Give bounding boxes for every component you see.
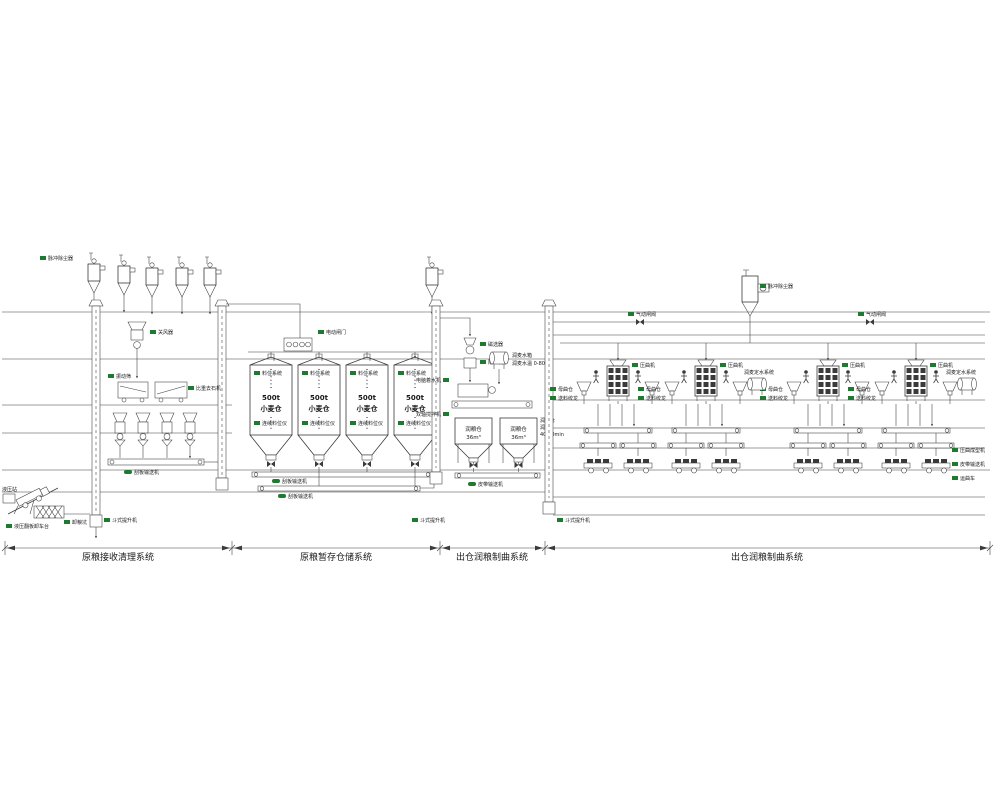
section-title-receiving: 原粮接收清理系统: [82, 551, 154, 563]
diagram-canvas: 料位系统 500t 小麦仓 连续料位仪 母曲仓 送料绞龙 压曲机: [0, 0, 1000, 800]
truck-tipper-label: 液压翻板卸车台: [14, 523, 49, 530]
moistening-belt-conveyor: 皮带输送机: [455, 473, 540, 488]
magnetic-separator-label: 磁选器: [488, 341, 503, 348]
bucket-elevator-c-label: 斗式提升机: [420, 517, 445, 524]
dust-collector-label: 脉冲除尘器: [48, 255, 73, 262]
electric-gate-label: 电动闸门: [326, 329, 346, 336]
section-title-moistening: 出仓润粮制曲系统: [456, 551, 528, 563]
bucket-elevator-label: 斗式提升机: [112, 517, 137, 524]
distribution-box: [284, 338, 312, 351]
koji-tag-column: 压曲成型机 皮带输送机 运曲车: [952, 447, 985, 482]
rotary-valve-label: 关风器: [158, 329, 173, 336]
discharge-conveyor-label-1: 刮板输送机: [282, 478, 307, 485]
koji-belt-label: 皮带输送机: [960, 461, 985, 468]
process-flow-diagram: { "diagram": { "sections": [ {"id": "rec…: [0, 0, 1000, 800]
pneumatic-valve-label-2: 气动闸阀: [866, 311, 886, 318]
bucket-elevator-a: [89, 300, 103, 527]
water-tank-label: 润麦水箱: [512, 352, 532, 359]
destoner-label: 比重去石机: [196, 385, 221, 392]
press-forming-label: 压曲成型机: [960, 447, 985, 454]
computer-water-label: 电脑着水机: [416, 377, 441, 384]
moistening-water-tank: 润麦水箱 润麦水温 0-80℃: [490, 352, 551, 384]
transport-cart-label: 运曲车: [960, 475, 975, 482]
section-title-storage: 原粮暂存仓储系统: [300, 551, 372, 563]
scraper-conveyor-1: 刮板输送机: [108, 459, 218, 476]
water-system-label-1: 润麦定水系统: [744, 369, 774, 376]
section-koji-making: 脉冲除尘器 气动闸阀 气动闸阀 润麦定水系统 润麦定水系统 压曲成型机 皮带输送…: [550, 270, 985, 482]
twin-shaft-mixer-label: 双轴搅拌机: [416, 411, 441, 418]
rotary-valve-unit: 关风器: [128, 322, 173, 378]
vibrating-screen-label: 振动筛: [116, 373, 131, 380]
section-title-koji: 出仓润粮制曲系统: [731, 551, 803, 563]
moistening-bin-1: 润粮仓 36m³: [455, 418, 492, 463]
bin-volume-1: 36m³: [466, 434, 481, 441]
gravity-destoner: 比重去石机: [155, 382, 221, 402]
bucket-elevator-d-label: 斗式提升机: [565, 517, 590, 524]
pneumatic-valve-tag-1: [628, 312, 634, 316]
koji-dust-collector-label: 脉冲除尘器: [768, 283, 793, 290]
elevator-tag: [104, 518, 110, 522]
vibrating-screen: 振动筛: [108, 373, 148, 402]
unloading-pit-label: 卸粮坑: [72, 519, 87, 526]
section-silo-storage: 电动闸门 刮板输送机 刮板输送机: [226, 304, 438, 500]
water-system-label-2: 润麦定水系统: [946, 369, 976, 376]
magnetic-separator: 磁选器: [464, 338, 503, 354]
electric-gate-tag: [318, 330, 324, 334]
silo-discharge-conveyor-1: 刮板输送机: [252, 472, 432, 485]
moistening-bin-2: 润粮仓 36m³: [500, 418, 537, 463]
dust-collector-tag: [40, 256, 46, 260]
scraper-conveyor-label: 刮板输送机: [134, 469, 159, 476]
koji-dust-collector-tag: [760, 284, 766, 288]
pneumatic-valve-label-1: 气动闸阀: [636, 311, 656, 318]
elevator-tag-d: [557, 518, 563, 522]
section-receiving-cleaning: 脉冲除尘器 关风器 振动筛 比重去石机: [2, 253, 229, 538]
dimension-line: 原粮接收清理系统 原粮暂存仓储系统 出仓润粮制曲系统 出仓润粮制曲系统: [2, 541, 993, 563]
bucket-elevator-b: [215, 300, 229, 490]
pneumatic-valve-tag-2: [858, 312, 864, 316]
bucket-elevator-d: [542, 300, 556, 514]
bin-volume-2: 36m³: [511, 434, 526, 441]
discharge-conveyor-label-2: 刮板输送机: [288, 493, 313, 500]
belt-conveyor-label: 皮带输送机: [478, 481, 503, 488]
silo-discharge-conveyor-2: 刮板输送机: [258, 486, 420, 500]
elevator-tag-c: [412, 518, 418, 522]
hydraulic-station-label: 液压站: [2, 486, 17, 493]
hydraulic-station: 液压站: [2, 486, 17, 503]
bin-name-1: 润粮仓: [465, 425, 482, 433]
bin-name-2: 润粮仓: [510, 425, 527, 433]
unloading-pit: 卸粮坑: [34, 506, 90, 526]
